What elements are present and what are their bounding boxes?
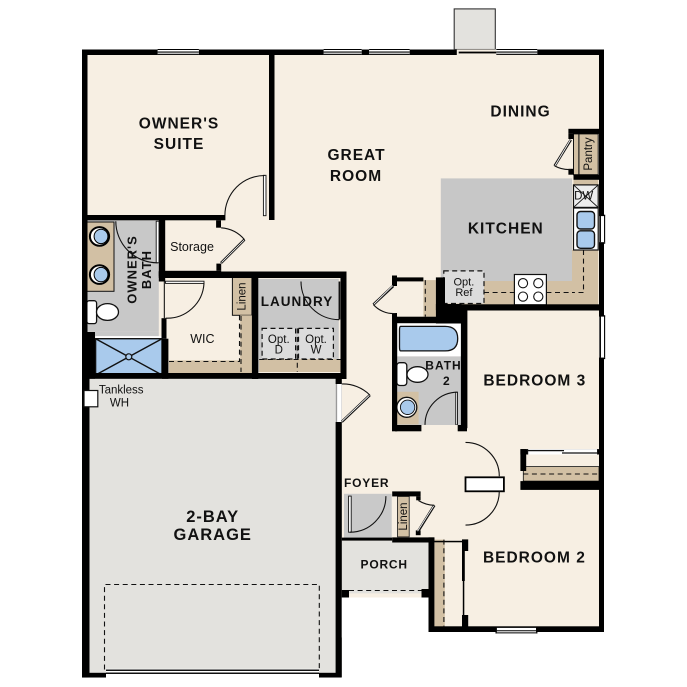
svg-text:W: W [311,345,322,357]
svg-text:2-BAY: 2-BAY [186,508,239,526]
svg-text:Linen: Linen [237,282,249,310]
svg-text:GREAT: GREAT [327,147,385,164]
svg-text:Storage: Storage [170,240,214,254]
svg-text:Tankless: Tankless [99,385,144,397]
svg-text:OWNER'S: OWNER'S [124,235,139,304]
svg-text:Linen: Linen [398,502,410,530]
svg-text:WIC: WIC [190,332,214,346]
svg-text:BEDROOM 3: BEDROOM 3 [483,373,586,390]
svg-text:FOYER: FOYER [344,476,389,490]
svg-text:SUITE: SUITE [154,136,205,153]
svg-text:LAUNDRY: LAUNDRY [261,294,334,309]
svg-text:KITCHEN: KITCHEN [468,221,544,238]
svg-text:GARAGE: GARAGE [173,526,251,544]
svg-text:Pantry: Pantry [583,137,595,170]
svg-text:OWNER'S: OWNER'S [139,116,219,133]
svg-text:DW: DW [574,191,593,203]
svg-text:DINING: DINING [490,103,550,120]
svg-text:ROOM: ROOM [330,168,382,185]
svg-text:PORCH: PORCH [361,558,408,572]
svg-text:BATH: BATH [425,359,461,373]
svg-text:BEDROOM 2: BEDROOM 2 [483,550,586,567]
svg-text:D: D [275,345,283,357]
svg-text:BATH: BATH [139,250,154,289]
svg-text:Ref: Ref [455,287,473,299]
svg-text:WH: WH [110,398,129,410]
svg-text:2: 2 [443,374,451,388]
